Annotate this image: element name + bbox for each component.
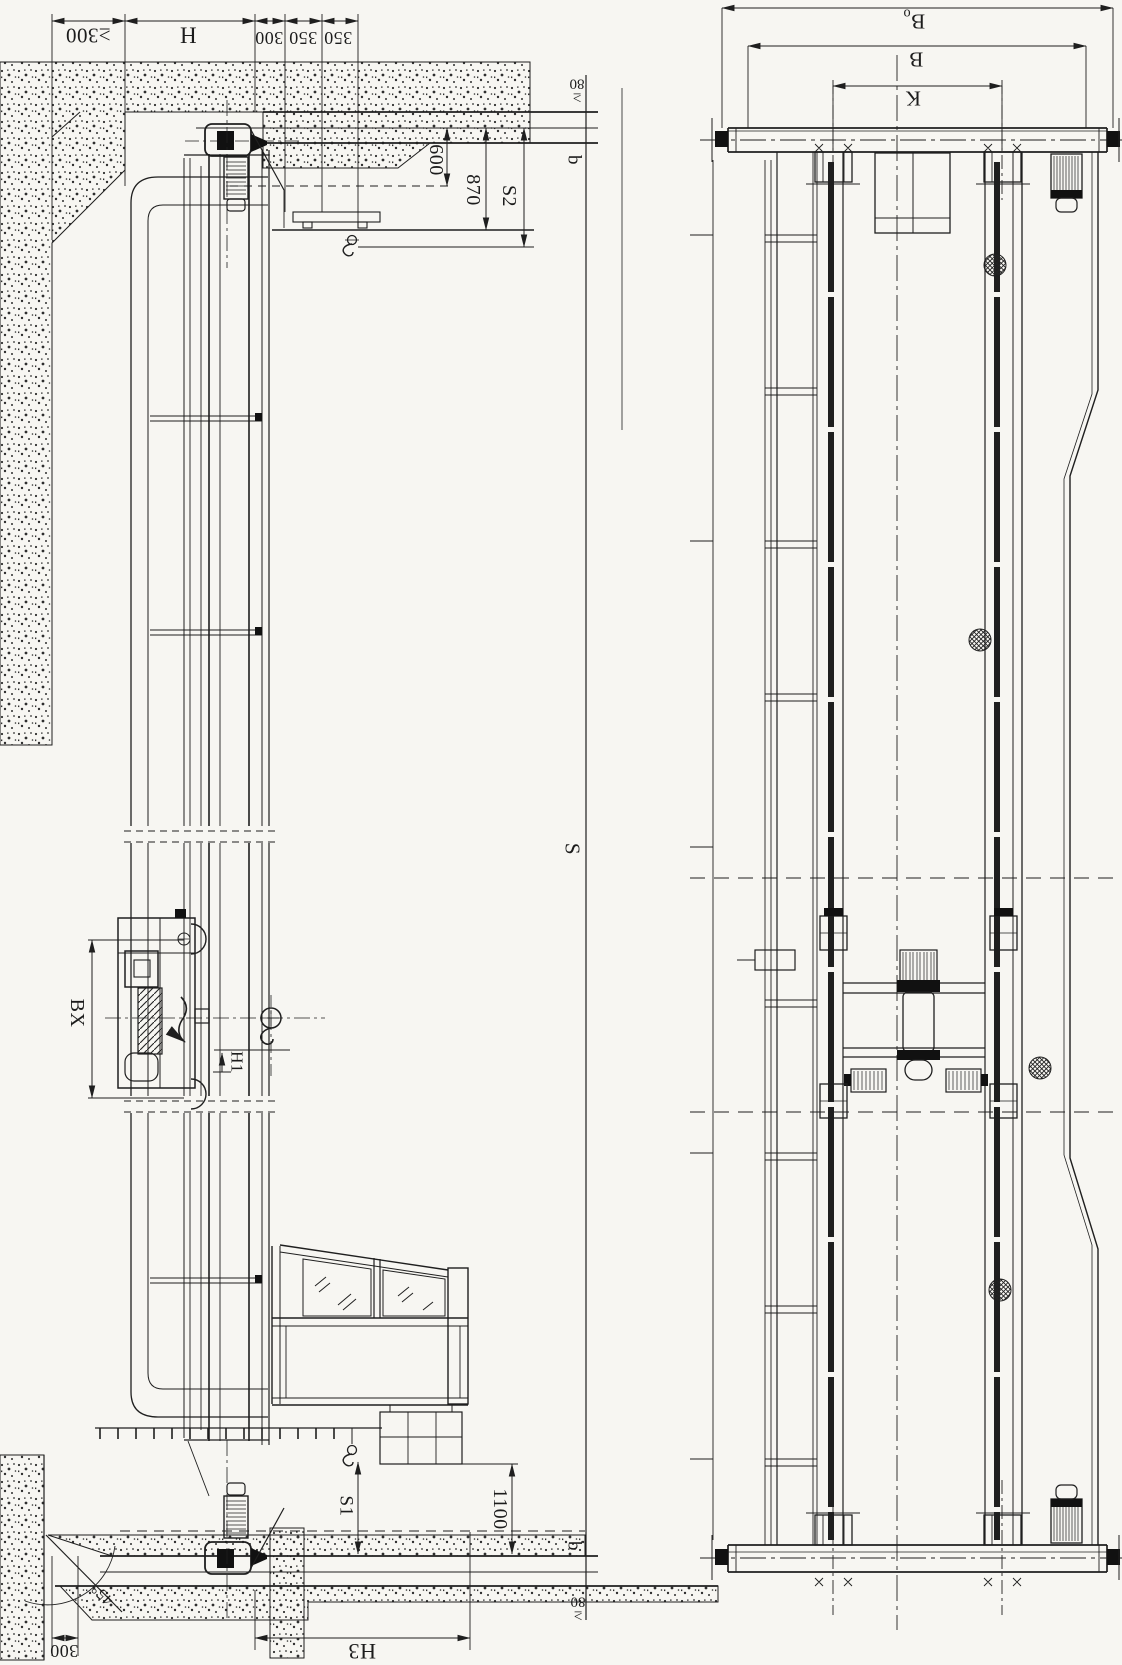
cab-plan: [875, 153, 950, 233]
elevation-view: [0, 14, 718, 1660]
building-concrete: [0, 62, 718, 1660]
operator-cab: [272, 1245, 468, 1464]
dim-label-bo: Bo: [903, 11, 925, 32]
end-carriage-bottom: [712, 1485, 1120, 1586]
dim-label-s1: S1: [337, 1495, 356, 1516]
bridge-girder: [122, 150, 278, 1445]
dim-label-ceiling-clearance: ≥300: [65, 25, 110, 46]
clearance-bottom-symbol: ≥: [574, 1608, 582, 1622]
dim-label-600: 600: [426, 144, 446, 176]
dim-label-clearance-top: ≥ 80: [570, 76, 585, 105]
dim-label-h1: H1: [229, 1051, 246, 1073]
walkway-ladder: [690, 235, 817, 1466]
dim-label-s2: S2: [499, 185, 519, 207]
dim-label-wall-offset: 300: [50, 1642, 79, 1660]
travel-motor-bottom: [1051, 1485, 1082, 1543]
dim-label-crane-height: H: [179, 24, 196, 47]
clearance-bottom-value: 80: [571, 1594, 586, 1608]
dim-label-k: K: [905, 88, 921, 109]
dim-label-clearance-bottom: ≥ 80: [571, 1594, 586, 1623]
dim-label-rail-stack-350a: 350: [289, 29, 318, 47]
dim-label-1100: 1100: [490, 1488, 510, 1529]
conductor-rail: [95, 1428, 382, 1466]
trolley-plan: [737, 908, 1017, 1118]
dim-label-870: 870: [463, 174, 483, 206]
rail-clamp-icon: [343, 236, 359, 256]
crane-drawing-sheet: ≥300 H 300 350 350 600 870 S2 ≥ 80 b S B…: [0, 0, 1122, 1665]
weld-marks: [969, 254, 1051, 1301]
bo-main: B: [911, 10, 926, 34]
dim-label-b-top: b: [565, 155, 584, 165]
ground-clamp-icon: [343, 1428, 356, 1466]
clearance-top-value: 80: [570, 76, 585, 90]
dim-label-b-plan: B: [909, 49, 924, 70]
main-girders: [690, 152, 1098, 1545]
dim-label-b-bottom: b: [565, 1541, 584, 1551]
plan-centerlines: [690, 55, 1122, 1630]
clearance-top-symbol: ≥: [573, 90, 581, 104]
dim-label-h3: H3: [348, 1640, 376, 1662]
end-carriage-top: [712, 118, 1120, 233]
trolley-wheels: [820, 908, 1017, 1118]
dim-label-span: S: [562, 843, 583, 855]
bo-sub: o: [903, 5, 911, 21]
travel-motor-top: [1051, 154, 1082, 212]
railing-ties: [150, 413, 262, 1283]
dim-label-bx: BX: [67, 999, 87, 1028]
trolley-hoist: [88, 909, 325, 1109]
dim-label-rail-stack-300: 300: [255, 29, 284, 47]
dim-label-rail-stack-350b: 350: [324, 29, 353, 47]
plan-view: [690, 8, 1122, 1630]
hoist-motor: [897, 950, 940, 1080]
drawing-linework: [0, 0, 1122, 1665]
